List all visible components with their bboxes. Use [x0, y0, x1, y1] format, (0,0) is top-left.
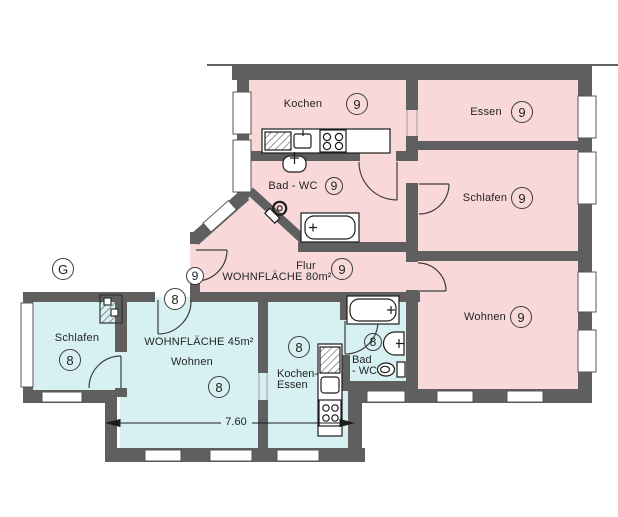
unit-badge-wohnen-9: 9	[510, 306, 532, 328]
room-label-badwc-8: Bad - WC	[352, 355, 377, 376]
window	[578, 152, 596, 204]
room-label-badwc-9: Bad - WC	[268, 180, 317, 192]
sink-drainer-icon	[265, 132, 291, 150]
kitchen-counter-8	[318, 344, 342, 436]
floor-plan-drawing	[0, 0, 618, 517]
unit-badge-kochen-9: 9	[346, 93, 368, 115]
window	[507, 391, 543, 402]
unit-badge-schlafen-8: 8	[59, 349, 81, 371]
stove-icon	[320, 130, 346, 152]
window	[233, 140, 251, 192]
room-wohnen-8-floor	[120, 297, 266, 452]
unit-badge-kochen-essen-8: 8	[288, 336, 310, 358]
window	[578, 330, 596, 372]
dimension-label: 7.60	[225, 416, 246, 428]
sink-basin-icon	[294, 134, 311, 148]
stove-icon	[319, 400, 341, 426]
room-label-wohnen-9: Wohnen	[464, 311, 506, 323]
unit-badge-flur-9: 9	[331, 258, 353, 280]
floor-plan: Kochen 9 Essen 9 Bad - WC 9 Schlafen 9 F…	[0, 0, 618, 517]
unit-badge-wohnen-8: 8	[208, 376, 230, 398]
room-label-kochen-essen-8-line2: Essen	[277, 380, 318, 391]
room-label-essen-9: Essen	[470, 106, 502, 118]
window	[21, 303, 33, 387]
room-label-kochen-essen-8-line1: Kochen-	[277, 369, 318, 380]
sink-drainer-icon	[320, 347, 340, 373]
area-label-apartment-80: WOHNFLÄCHE 80m²	[222, 271, 331, 283]
window	[210, 450, 252, 461]
bathtub-icon-8	[347, 296, 399, 324]
window	[367, 391, 405, 402]
chimney	[100, 295, 122, 323]
washbasin-icon-8	[384, 332, 404, 355]
kitchen-counter-9	[262, 129, 390, 153]
room-label-wohnen-8: Wohnen	[171, 356, 213, 368]
room-label-badwc-8-line1: Bad	[352, 355, 377, 366]
bathtub-icon-9	[301, 213, 359, 242]
room-label-kochen-essen-8: Kochen- Essen	[277, 369, 318, 390]
entrance-badge-8: 8	[164, 288, 186, 310]
entrance-badge-9: 9	[186, 267, 204, 285]
window	[578, 96, 596, 138]
sink-basin-icon	[321, 377, 339, 393]
toilet-icon-8	[378, 362, 406, 377]
room-label-schlafen-8: Schlafen	[55, 332, 99, 344]
area-label-apartment-45: WOHNFLÄCHE 45m²	[144, 336, 253, 348]
unit-badge-badwc-8: 8	[364, 333, 382, 351]
room-wohnen-9-floor	[410, 255, 586, 397]
unit-badge-essen-9: 9	[511, 101, 533, 123]
room-label-kochen-9: Kochen	[284, 98, 323, 110]
window	[277, 450, 319, 461]
unit-badge-schlafen-9: 9	[511, 187, 533, 209]
window	[233, 92, 251, 134]
room-label-badwc-8-line2: - WC	[352, 366, 377, 377]
window	[145, 450, 181, 461]
room-label-schlafen-9: Schlafen	[463, 192, 507, 204]
window	[437, 391, 473, 402]
stairwell-badge-g: G	[52, 258, 74, 280]
window	[42, 392, 82, 402]
unit-badge-badwc-9: 9	[325, 177, 343, 195]
window	[578, 272, 596, 312]
